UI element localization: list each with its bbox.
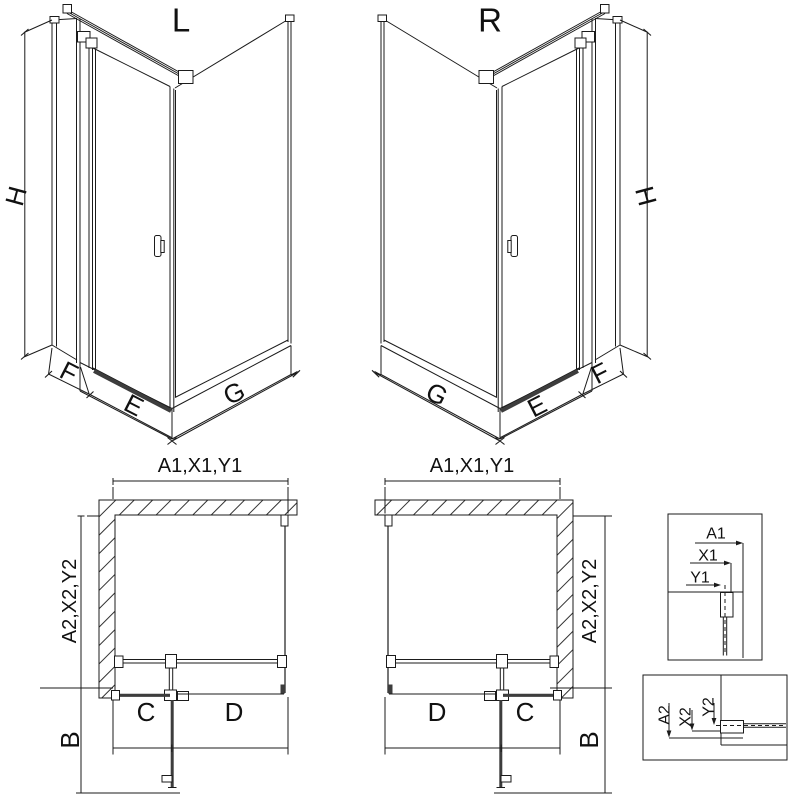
plan-right-dim-door: D <box>428 697 447 727</box>
detail-width-glass: Y1 <box>690 570 710 587</box>
iso-left-dim-side-panel: F <box>55 355 83 389</box>
detail-width-outer: A1 <box>706 526 726 543</box>
detail-width-profile: X1 <box>698 548 718 565</box>
iso-view-left: L H F E G <box>0 2 300 445</box>
plan-right-dim-swing: B <box>574 731 604 748</box>
iso-right-dim-height: H <box>629 183 663 209</box>
plan-right-dim-depth: A2,X2,Y2 <box>579 559 601 644</box>
plan-view-left: A1,X1,Y1 A2,X2,Y2 C D B <box>40 455 297 793</box>
detail-box-width: A1 X1 Y1 <box>668 514 762 660</box>
detail-depth-glass: Y2 <box>701 697 718 717</box>
plan-right-dim-fixed: C <box>516 697 535 727</box>
plan-right-dim-width: A1,X1,Y1 <box>430 455 515 477</box>
plan-right-walls <box>375 500 573 698</box>
iso-left-dim-door: E <box>119 388 148 423</box>
detail-depth-outer: A2 <box>657 705 674 725</box>
iso-right-dim-side-panel: F <box>586 356 614 390</box>
plan-left-dim-fixed: C <box>137 697 156 727</box>
plan-view-right: A1,X1,Y1 A2,X2,Y2 D C B <box>375 455 612 793</box>
detail-depth-profile: X2 <box>678 707 695 727</box>
detail-box-depth: A2 X2 Y2 <box>643 675 787 760</box>
iso-left-dim-height: H <box>0 183 33 209</box>
iso-view-right: R H G E F <box>372 2 663 445</box>
shower-enclosure-diagram: L H F E G R H G E F A1,X1,Y1 A2,X2,Y2 C … <box>0 0 800 800</box>
plan-left-dim-width: A1,X1,Y1 <box>158 455 243 477</box>
iso-right-dim-door: E <box>522 389 551 424</box>
iso-left-dim-wall-panel: G <box>218 375 250 411</box>
plan-left-walls <box>99 500 297 698</box>
iso-left-title: L <box>172 2 190 39</box>
plan-left-dim-swing: B <box>55 731 85 748</box>
iso-right-title: R <box>478 2 502 39</box>
plan-left-dim-door: D <box>225 697 244 727</box>
technical-drawing-page: L H F E G R H G E F A1,X1,Y1 A2,X2,Y2 C … <box>0 0 800 800</box>
plan-left-dim-depth: A2,X2,Y2 <box>59 559 81 644</box>
